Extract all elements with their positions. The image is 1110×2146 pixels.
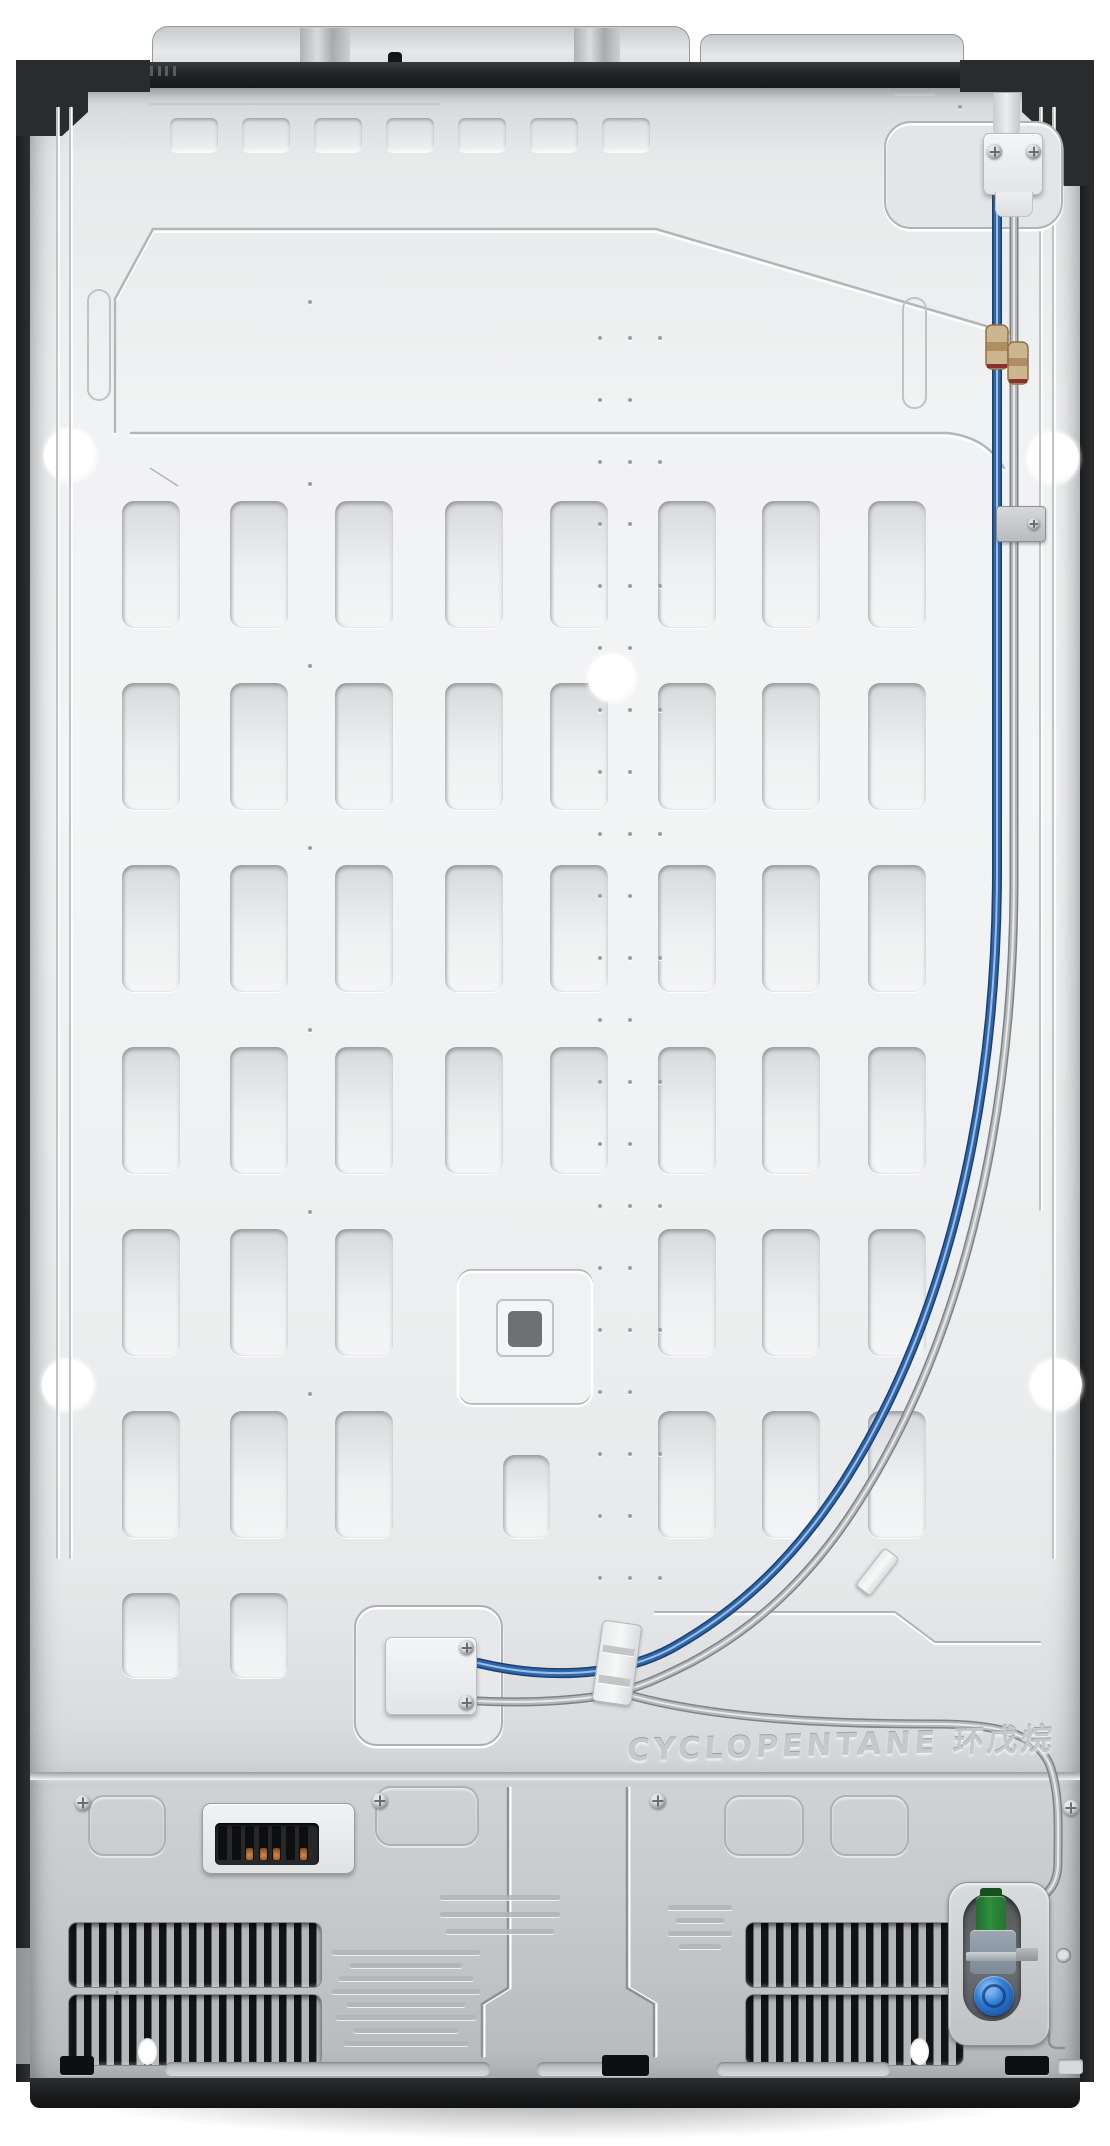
- base-slot: [60, 2056, 94, 2075]
- embossed-text-line: [339, 1976, 472, 1981]
- embossed-text-line: [354, 2028, 458, 2033]
- clamp-screw: [1028, 518, 1040, 530]
- brass-coupler-blue-line: [986, 325, 1008, 369]
- tubing-and-emboss-graphics: [0, 0, 1110, 2146]
- grey-water-tube-upper: [478, 150, 1014, 1702]
- terminal-orange-glow: [246, 1848, 253, 1860]
- vent-grille-band: [745, 1922, 964, 1988]
- connector-screw: [987, 144, 1002, 159]
- embossed-text-line: [679, 1944, 721, 1949]
- clip-notch: [602, 1645, 635, 1656]
- terminal-slot: [218, 1826, 227, 1860]
- embossed-text-line: [332, 1950, 480, 1955]
- center-square-emboss: [458, 1270, 592, 1406]
- terminal-orange-glow: [273, 1848, 280, 1860]
- blue-water-tube: [478, 148, 997, 1673]
- vent-grille-band: [68, 1922, 322, 1988]
- left-corner-bracket: [16, 60, 150, 136]
- valve-side-tab: [1016, 1948, 1038, 1961]
- embossed-text-line: [668, 1905, 732, 1910]
- vent-grille-band: [68, 1994, 322, 2066]
- scratch-mark: [150, 468, 178, 486]
- embossed-text-line: [446, 1929, 554, 1934]
- upper-faint-label: [440, 1895, 560, 1947]
- embossed-text-line: [332, 1989, 480, 1994]
- vent-grille-band: [745, 1994, 964, 2066]
- screw-hole: [1056, 1948, 1071, 1963]
- embossed-text-line: [336, 2015, 476, 2020]
- water-inlet-connector-block: [983, 133, 1043, 195]
- base-slot: [1058, 2059, 1083, 2074]
- inlet-tube-stub: [993, 93, 1020, 135]
- embossed-text-line: [440, 1895, 560, 1900]
- drain-cutout: [138, 2038, 157, 2065]
- connector-lower-tab: [995, 192, 1033, 217]
- tube-clamp: [996, 506, 1046, 542]
- base-groove: [717, 2062, 890, 2075]
- valve-bracket-band: [966, 1952, 1020, 1961]
- upper-emboss-band: [115, 229, 1013, 471]
- brass-coupler-grey-line: [1008, 342, 1028, 384]
- terminal-slot: [286, 1826, 295, 1860]
- embossed-text-line: [440, 1912, 560, 1917]
- base-slot: [1005, 2056, 1049, 2075]
- clip-notch: [598, 1675, 631, 1687]
- embossed-text-line: [668, 1931, 732, 1936]
- embossed-text-line: [350, 1963, 463, 1968]
- terminal-orange-glow: [300, 1848, 307, 1860]
- terminal-slot: [232, 1826, 241, 1860]
- base-slot: [602, 2055, 649, 2076]
- connector-screw: [1026, 144, 1041, 159]
- drain-cutout: [910, 2038, 929, 2065]
- embossed-text-line: [344, 2041, 469, 2046]
- junction-connector-block: [385, 1637, 477, 1715]
- coil-swirl: [982, 1984, 1006, 2008]
- left-warning-label: [332, 1950, 480, 2054]
- embossed-text-line: [347, 2002, 466, 2007]
- junction-screw: [459, 1640, 474, 1655]
- valve-coil: [974, 1976, 1014, 2016]
- terminal-orange-glow: [260, 1848, 267, 1860]
- base-groove: [165, 2062, 490, 2075]
- right-warning-label: [668, 1905, 732, 1963]
- refrigerator-back-photo: CYCLOPENTANE 环戊烷: [0, 0, 1110, 2146]
- valve-green-fitting: [976, 1896, 1006, 1932]
- embossed-text-line: [676, 1918, 725, 1923]
- panel-seam-lines: [150, 95, 935, 104]
- junction-screw: [459, 1695, 474, 1710]
